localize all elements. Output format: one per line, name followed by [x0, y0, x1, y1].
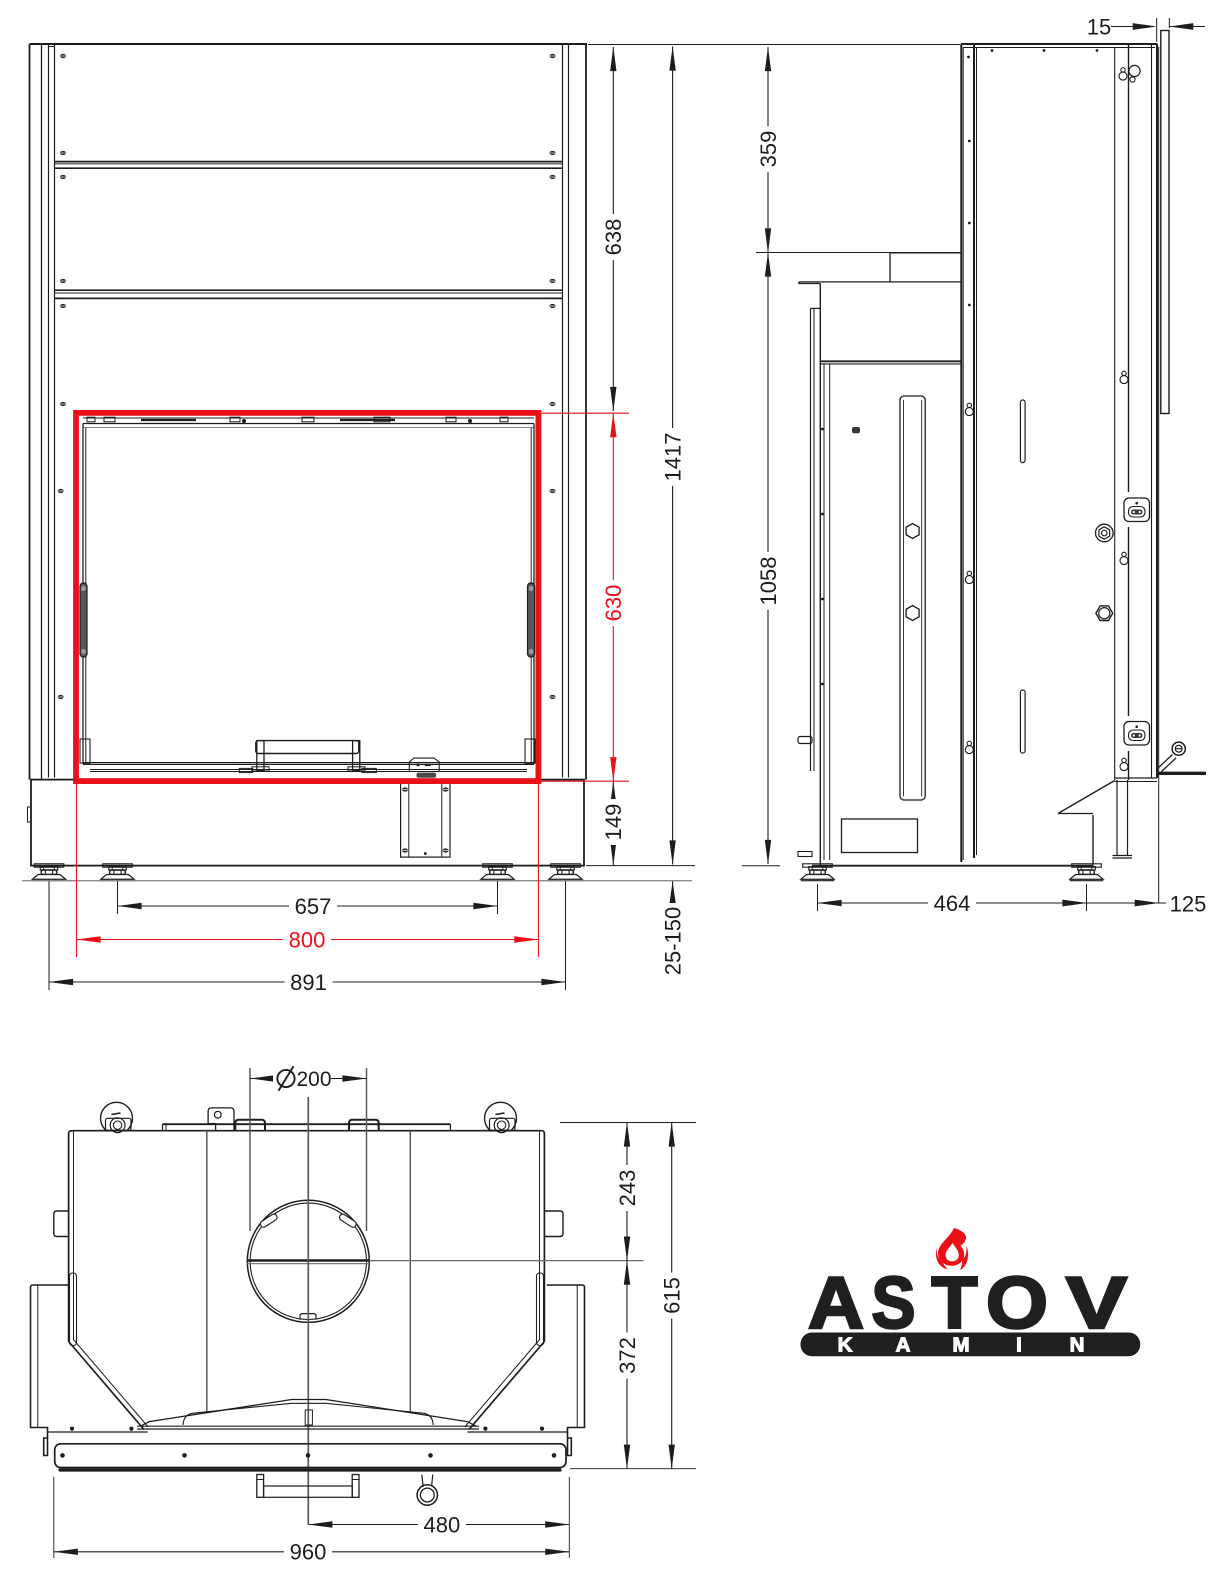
svg-text:372: 372 — [615, 1337, 640, 1374]
svg-text:960: 960 — [290, 1540, 327, 1565]
svg-text:359: 359 — [756, 131, 781, 168]
svg-text:V: V — [1066, 1263, 1127, 1344]
svg-text:1417: 1417 — [661, 433, 686, 482]
svg-text:K: K — [838, 1334, 853, 1357]
svg-text:480: 480 — [424, 1512, 461, 1537]
svg-text:657: 657 — [295, 894, 332, 919]
svg-text:T: T — [932, 1263, 978, 1344]
svg-text:800: 800 — [289, 927, 326, 952]
svg-text:891: 891 — [290, 970, 327, 995]
svg-text:I: I — [1016, 1334, 1022, 1357]
svg-text:A: A — [808, 1263, 864, 1344]
svg-text:243: 243 — [615, 1170, 640, 1207]
svg-text:615: 615 — [660, 1277, 685, 1314]
svg-text:149: 149 — [601, 804, 626, 841]
svg-text:638: 638 — [601, 219, 626, 256]
svg-text:25-150: 25-150 — [661, 907, 686, 976]
svg-text:M: M — [952, 1334, 969, 1357]
svg-text:125: 125 — [1170, 891, 1207, 916]
svg-text:S: S — [872, 1263, 916, 1344]
svg-text:630: 630 — [601, 585, 626, 622]
svg-text:1058: 1058 — [756, 557, 781, 606]
svg-text:464: 464 — [934, 891, 971, 916]
svg-text:15: 15 — [1087, 14, 1111, 39]
svg-text:O: O — [986, 1263, 1048, 1344]
svg-text:N: N — [1070, 1334, 1085, 1357]
svg-text:200: 200 — [296, 1068, 331, 1091]
svg-text:A: A — [896, 1334, 911, 1357]
